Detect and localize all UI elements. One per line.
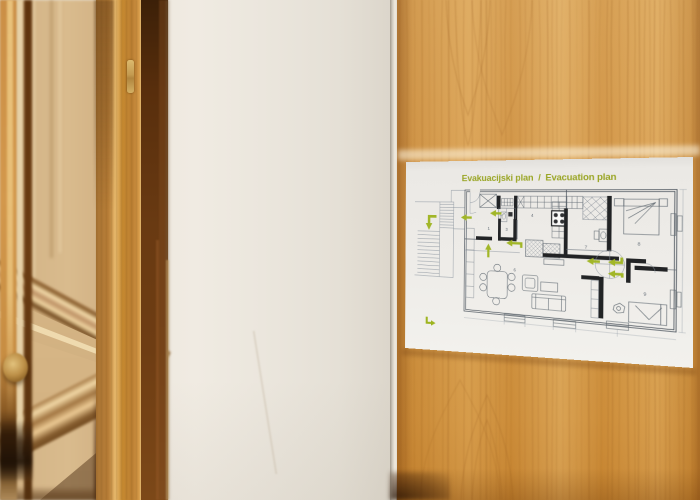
svg-text:7: 7 bbox=[585, 244, 588, 250]
svg-text:8: 8 bbox=[638, 241, 641, 247]
svg-text:9: 9 bbox=[643, 291, 646, 297]
svg-text:4: 4 bbox=[531, 213, 534, 218]
svg-text:3: 3 bbox=[505, 227, 508, 232]
svg-text:6: 6 bbox=[513, 267, 516, 272]
svg-text:1: 1 bbox=[488, 226, 491, 231]
